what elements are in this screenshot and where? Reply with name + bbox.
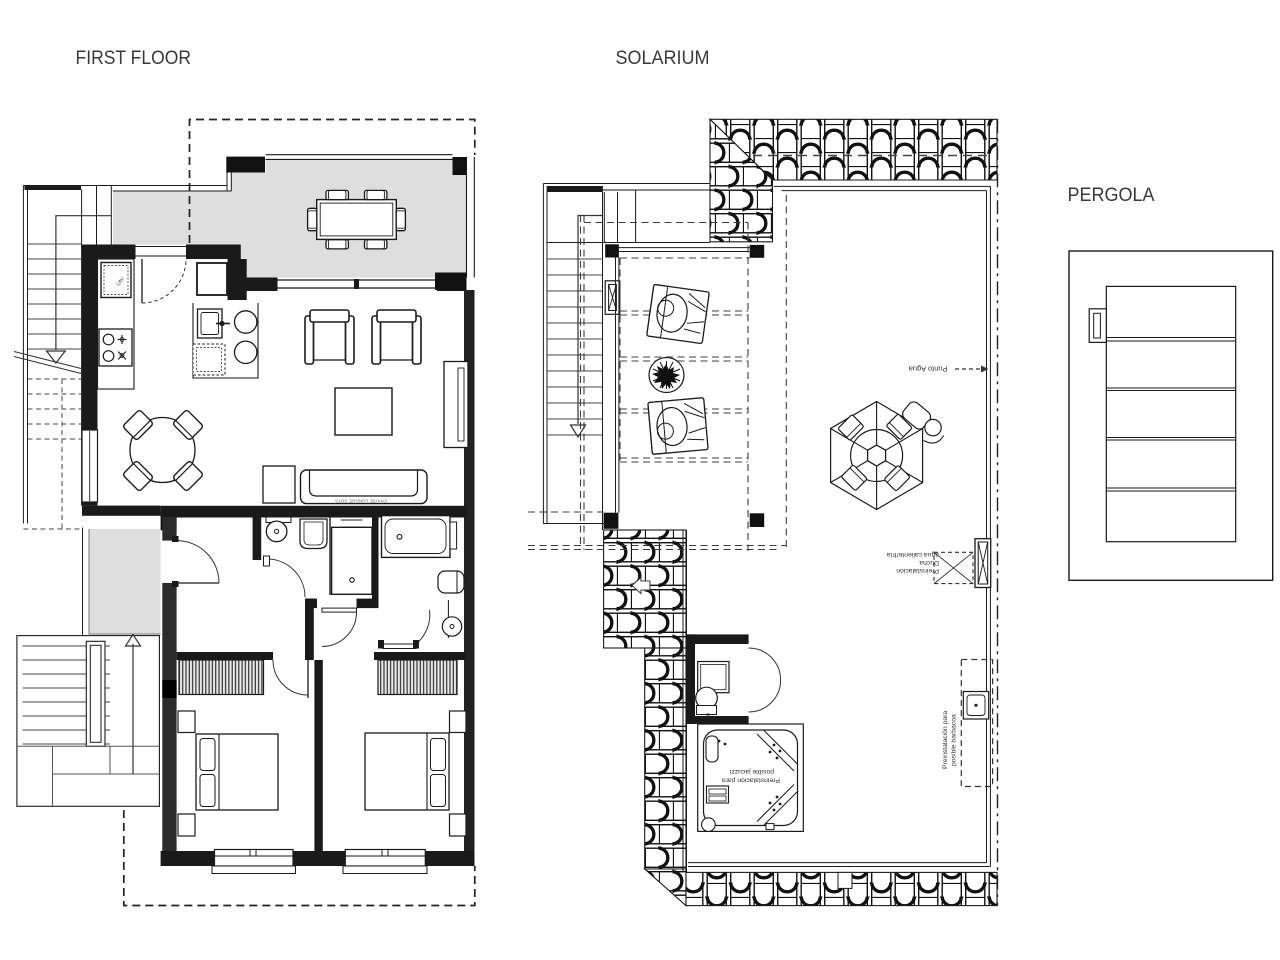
svg-text:Preinstalación: Preinstalación — [896, 567, 939, 574]
svg-text:Preinstalación para: Preinstalación para — [722, 776, 780, 783]
svg-text:Ducha: Ducha — [919, 559, 939, 566]
svg-text:FIRST FLOOR: FIRST FLOOR — [76, 47, 192, 69]
svg-text:CHAISE LONGUE SOFA: CHAISE LONGUE SOFA — [335, 499, 387, 504]
svg-text:Punto Agua: Punto Agua — [908, 365, 948, 374]
svg-text:E: E — [706, 712, 710, 718]
svg-text:posible jacuzzi: posible jacuzzi — [729, 768, 774, 775]
svg-text:posible barbacoa: posible barbacoa — [951, 714, 958, 766]
svg-text:agua caliente/fría: agua caliente/fría — [887, 551, 939, 558]
svg-text:Preinstalación para: Preinstalación para — [942, 711, 949, 769]
svg-text:PERGOLA: PERGOLA — [1068, 184, 1155, 206]
svg-text:SOLARIUM: SOLARIUM — [616, 47, 710, 69]
